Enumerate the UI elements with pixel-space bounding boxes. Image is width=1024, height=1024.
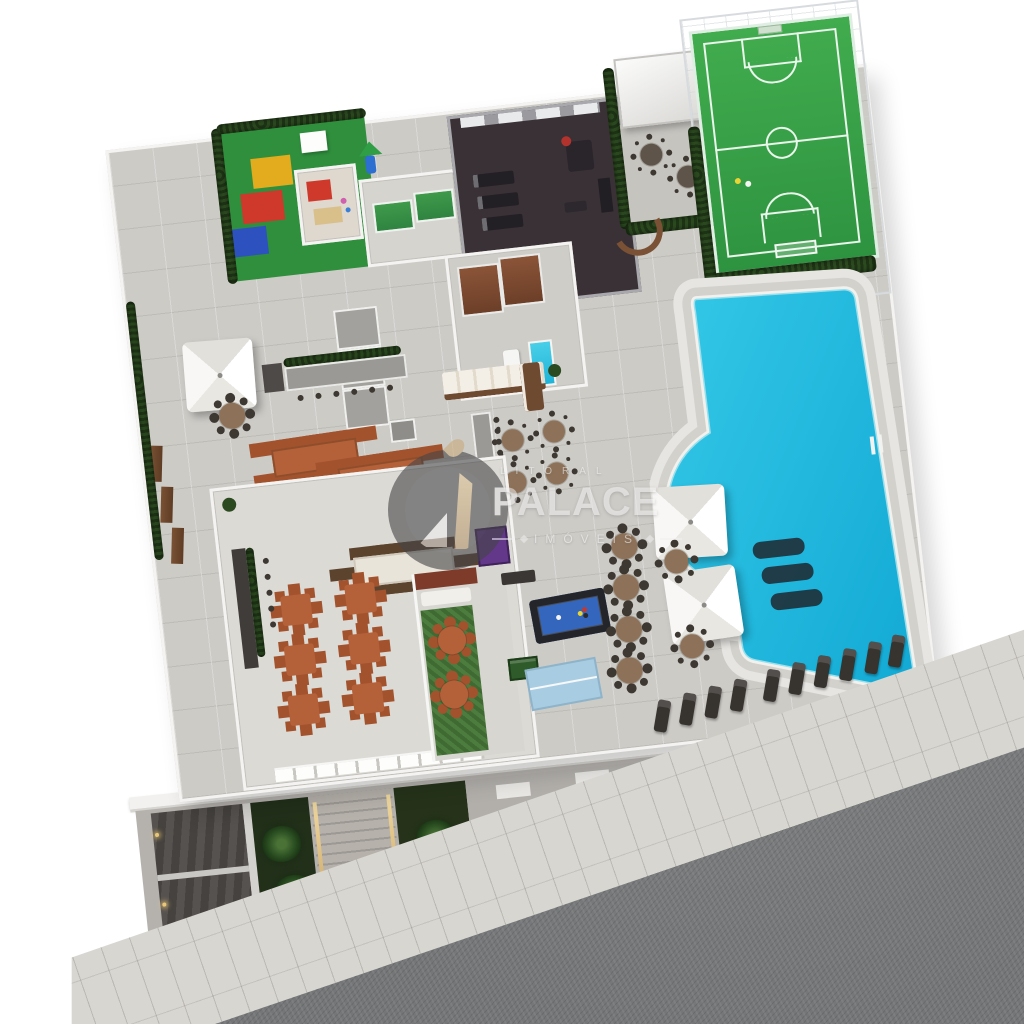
garden-bench [160,487,173,523]
slide-chute [365,155,377,174]
brand-logo-tower [449,473,479,549]
mini-court-table [413,188,456,222]
barbecue-grill [262,363,285,393]
counter-stools [297,395,304,402]
shade-umbrella [182,337,257,412]
playroom-tan-mat [313,206,343,225]
gym-windows [460,102,600,128]
kids-playroom [294,163,364,246]
wall-light [155,833,159,837]
billiard-balls [556,615,562,621]
watermark: LITORAL PALACE IMÓVEIS [388,438,698,588]
service-door [496,782,531,799]
ornament-line [492,538,514,540]
billiards-table [529,587,612,644]
sauna-cabin [457,263,504,317]
brand-logo-wedge [417,513,447,547]
round-table [615,656,644,685]
ornament-line [660,538,682,540]
brand-sub-row: IMÓVEIS [492,532,682,546]
toy-ball [340,198,347,205]
net-line [530,676,597,690]
bar-stools [493,417,500,424]
edge-planter [126,301,164,560]
ramp-beam [157,866,249,882]
party-table [344,582,377,615]
garden-bench [171,528,184,564]
toy-ball [345,207,351,213]
party-table [287,693,320,726]
slide-roof [357,140,382,157]
basketball-backboard [758,24,783,35]
treadmill [477,192,519,210]
brand-main-text: PALACE [492,480,659,525]
workout-bench [564,200,587,212]
wall-light [162,902,166,906]
service-core-block [333,306,381,351]
kitchen-stools [263,558,270,565]
party-table [351,682,384,715]
brand-logo-ring [388,450,508,570]
party-table [280,593,313,626]
party-table [284,643,317,676]
dumbbell-rack [598,178,614,213]
amenities-floorplan-render: LITORAL PALACE IMÓVEIS [0,0,1024,1024]
mini-court-table [372,199,415,233]
brand-top-text: LITORAL [500,466,612,477]
party-table [348,632,381,665]
palm-tree [259,824,305,864]
round-table [615,615,644,644]
treadmill [481,214,523,232]
garden-sofa [420,587,471,607]
amenity-deck [105,64,940,802]
potted-plant [221,497,236,512]
play-mat-red [240,190,285,225]
service-core-block [342,385,390,430]
play-canopy [300,130,328,153]
sauna-cabin [498,253,545,307]
play-mat-yellow [250,155,293,189]
ornament-diamond [520,535,528,543]
brand-sub-text: IMÓVEIS [534,532,640,546]
kids-games-room [358,169,465,268]
playroom-red-mat [306,179,332,202]
sun-lounger [653,699,671,733]
treadmill [472,170,514,188]
ornament-diamond [646,535,654,543]
